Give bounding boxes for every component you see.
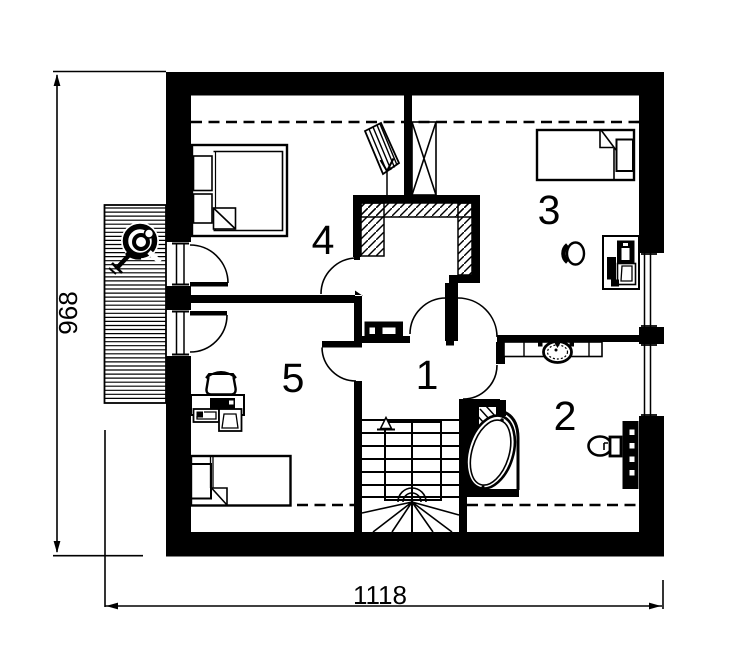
svg-text:3: 3 — [538, 187, 561, 233]
svg-text:1: 1 — [416, 352, 439, 398]
svg-text:4: 4 — [312, 217, 335, 263]
svg-text:968: 968 — [53, 291, 83, 334]
svg-text:2: 2 — [554, 393, 577, 439]
svg-text:1118: 1118 — [353, 580, 407, 610]
svg-text:5: 5 — [282, 355, 305, 401]
